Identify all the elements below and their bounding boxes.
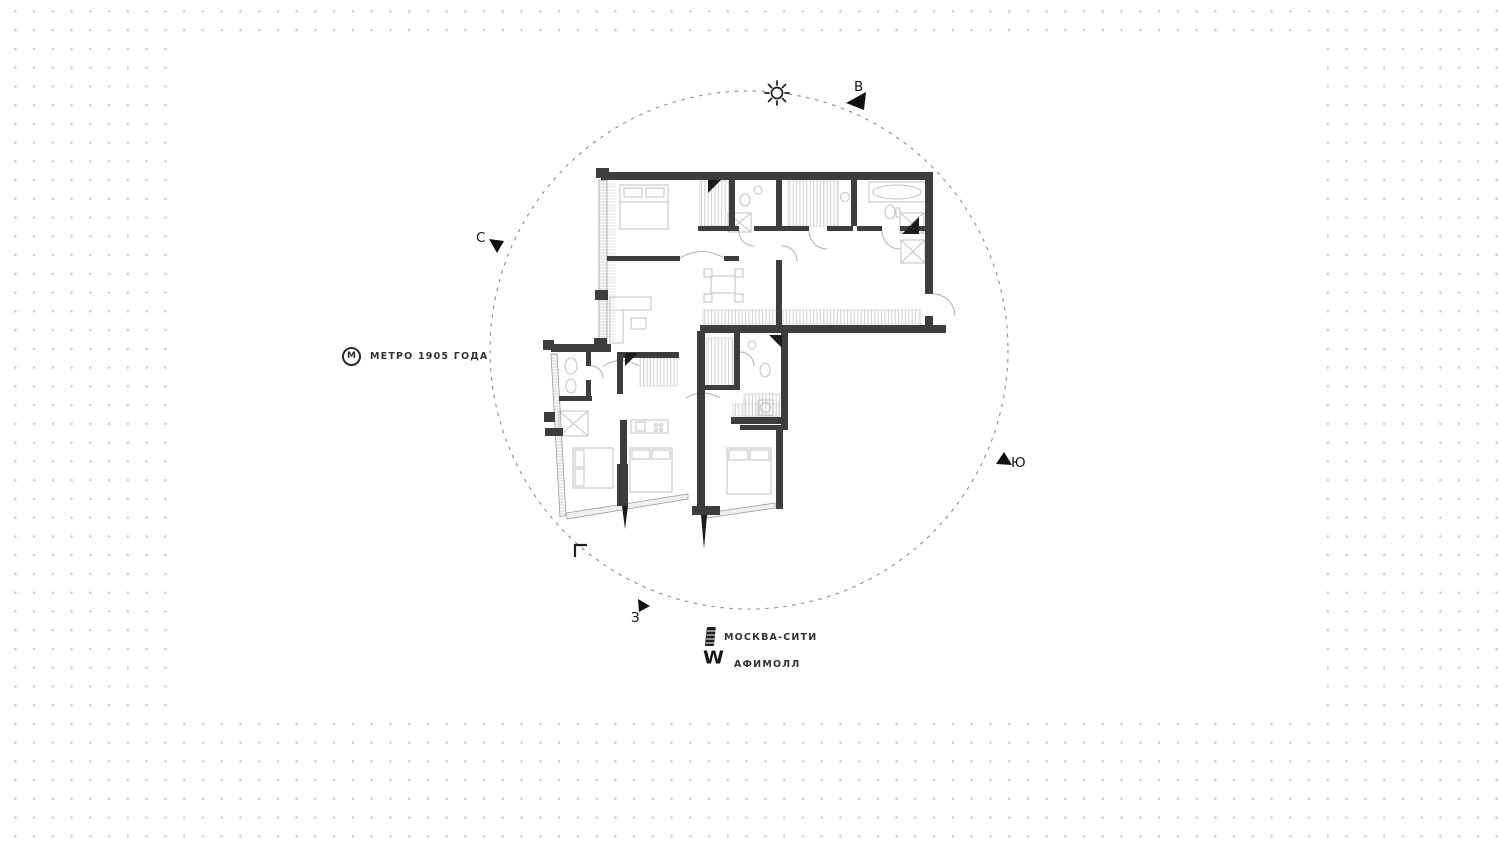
metro-icon: М [342,347,361,366]
corner-datum-mark [575,545,587,557]
canvas: В С Ю З М МЕТРО 1905 ГОДА МОСКВА-СИТИ W … [0,0,1500,842]
north-arrow-icon [489,239,504,253]
sun-icon [765,81,789,105]
compass-label-east: В [854,79,864,95]
skyscraper-icon [703,626,719,648]
afimall-label: АФИМОЛЛ [734,659,800,670]
metro-label: МЕТРО 1905 ГОДА [370,351,488,362]
afimall-icon: W [703,649,724,667]
south-arrow-icon [996,452,1012,465]
apartment-plan [543,168,955,549]
compass-label-west: З [631,610,640,626]
metro-icon-letter: М [347,352,356,361]
compass-label-north: С [476,230,486,246]
compass-label-south: Ю [1011,455,1026,471]
floor-plan-drawing [0,0,1500,842]
moscow-city-label: МОСКВА-СИТИ [724,632,817,643]
